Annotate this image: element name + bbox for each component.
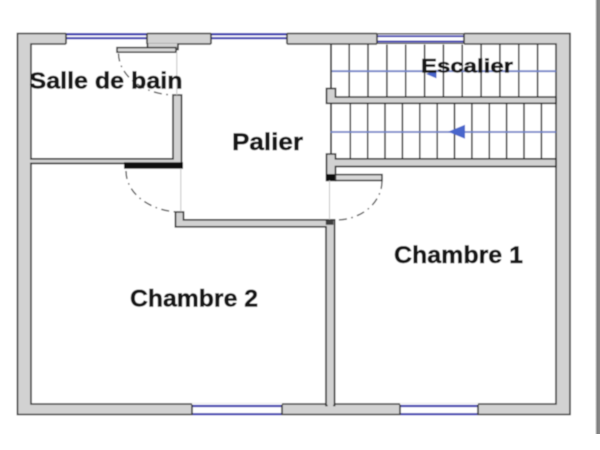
svg-text:Palier: Palier: [232, 129, 303, 156]
svg-text:Salle de bain: Salle de bain: [30, 68, 183, 94]
svg-text:Escalier: Escalier: [421, 55, 514, 77]
svg-text:Chambre 2: Chambre 2: [130, 286, 258, 313]
svg-text:Chambre 1: Chambre 1: [394, 242, 523, 269]
